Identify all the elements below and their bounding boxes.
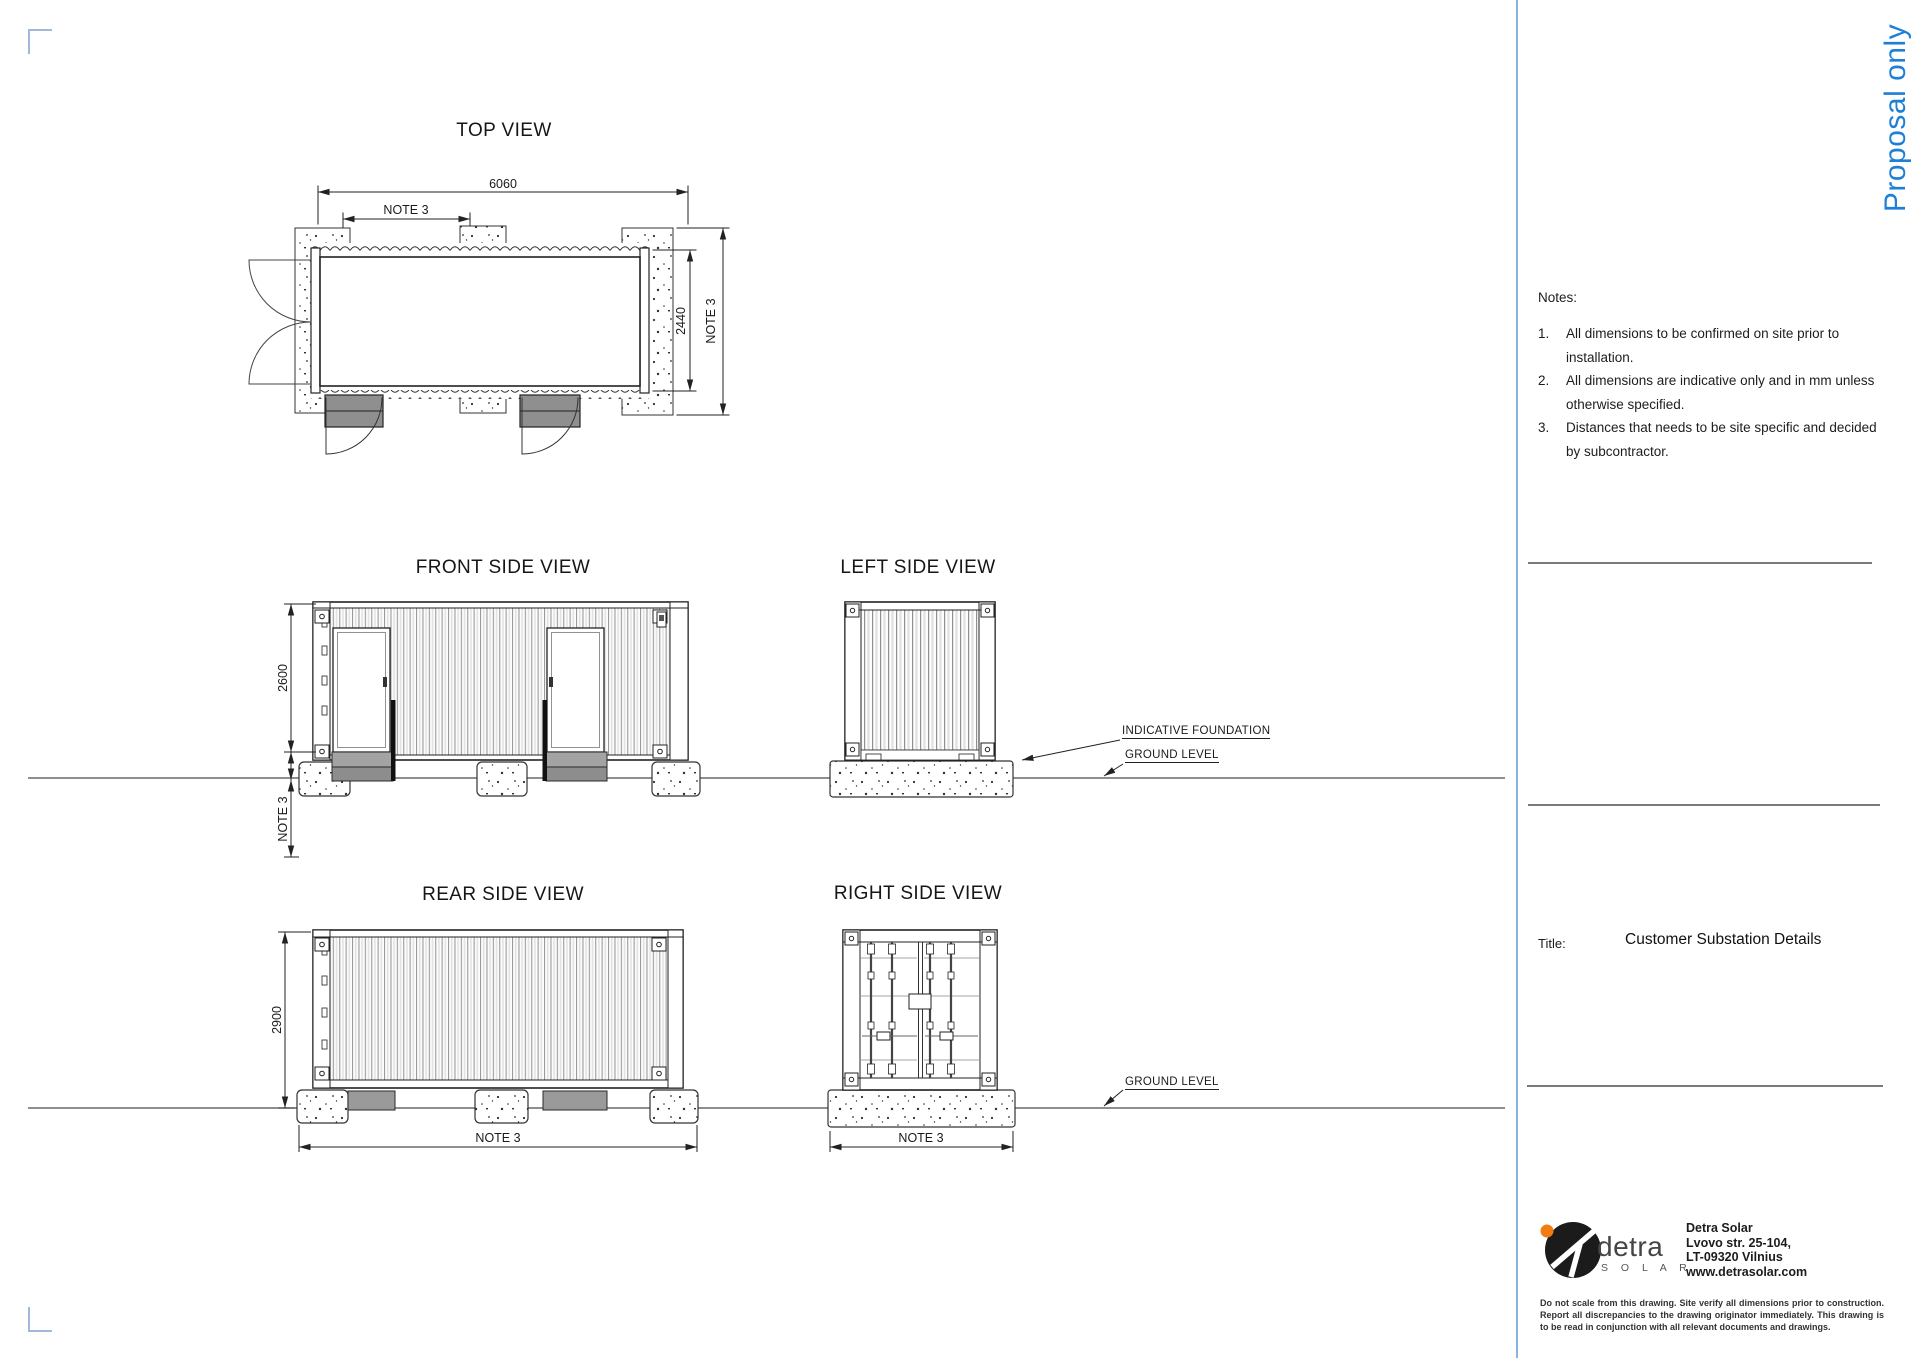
container-door-end xyxy=(843,930,997,1090)
foundation-pad xyxy=(652,762,700,796)
left-side-view xyxy=(830,602,1123,797)
ground-level-label-bottom: GROUND LEVEL xyxy=(1125,1076,1219,1090)
company-address-line2: LT-09320 Vilnius xyxy=(1686,1250,1807,1265)
center-latch xyxy=(909,994,931,1009)
drawing-sheet: TOP VIEW FRONT SIDE VIEW LEFT SIDE VIEW … xyxy=(0,0,1920,1358)
indicative-foundation-label: INDICATIVE FOUNDATION xyxy=(1122,725,1270,739)
view-title-top: TOP VIEW xyxy=(456,120,551,142)
foundation-pad xyxy=(650,1090,698,1123)
leader-indicative-foundation xyxy=(1022,740,1120,760)
dim-front-height: 2600 xyxy=(276,664,290,692)
right-side-view xyxy=(828,930,1123,1152)
foundation-pad xyxy=(297,1090,348,1123)
door-handle xyxy=(877,1032,890,1040)
panel-separator-1 xyxy=(1528,562,1872,564)
ground-level-label-mid: GROUND LEVEL xyxy=(1125,749,1219,763)
corner-mark-bottom-left xyxy=(28,1307,52,1332)
logo-wordmark: detra xyxy=(1597,1231,1663,1263)
door-handle xyxy=(940,1032,953,1040)
drawing-disclaimer: Do not scale from this drawing. Site ver… xyxy=(1540,1297,1884,1333)
dim-rear-height: 2900 xyxy=(270,1006,284,1034)
view-title-front: FRONT SIDE VIEW xyxy=(416,557,591,579)
dim-top-note: NOTE 3 xyxy=(383,203,428,217)
container-plan-outline xyxy=(320,257,640,386)
note-item: 3. Distances that needs to be site speci… xyxy=(1538,416,1883,463)
panel-separator-3 xyxy=(1527,1085,1883,1087)
notes-list: 1. All dimensions to be confirmed on sit… xyxy=(1538,322,1883,463)
view-title-left: LEFT SIDE VIEW xyxy=(840,557,995,579)
dim-front-note: NOTE 3 xyxy=(276,796,290,841)
dim-top-width: 6060 xyxy=(489,177,517,191)
foundation-block xyxy=(830,761,1013,797)
panel-separator-2 xyxy=(1528,804,1880,806)
note-item: 2. All dimensions are indicative only an… xyxy=(1538,369,1883,416)
leader-ground-level xyxy=(1104,764,1123,776)
title-block-label: Title: xyxy=(1538,936,1566,951)
view-title-rear: REAR SIDE VIEW xyxy=(422,884,584,906)
dim-right-note: NOTE 3 xyxy=(898,1131,943,1145)
company-address: Detra Solar Lvovo str. 25-104, LT-09320 … xyxy=(1686,1221,1807,1279)
note-text: Distances that needs to be site specific… xyxy=(1566,416,1878,463)
notes-heading: Notes: xyxy=(1538,290,1577,305)
proposal-watermark: Proposal only xyxy=(1879,24,1913,212)
company-website: www.detrasolar.com xyxy=(1686,1265,1807,1280)
company-address-line1: Lvovo str. 25-104, xyxy=(1686,1236,1807,1251)
note-text: All dimensions are indicative only and i… xyxy=(1566,369,1878,416)
note-item: 1. All dimensions to be confirmed on sit… xyxy=(1538,322,1883,369)
note-number: 3. xyxy=(1538,416,1566,463)
front-side-view xyxy=(284,602,700,857)
corner-mark-top-left xyxy=(28,29,52,54)
door-front-1 xyxy=(333,628,390,752)
note-text: All dimensions to be confirmed on site p… xyxy=(1566,322,1878,369)
dim-top-depth: 2440 xyxy=(674,307,688,335)
container-roof-corrugation-top xyxy=(311,243,649,252)
leader-ground-level xyxy=(1104,1090,1123,1106)
rear-side-view xyxy=(278,930,698,1152)
top-view-plan xyxy=(249,186,729,454)
title-block-value: Customer Substation Details xyxy=(1625,931,1821,949)
dim-top-note-right: NOTE 3 xyxy=(704,298,718,343)
foundation-pad xyxy=(477,762,527,796)
view-title-right: RIGHT SIDE VIEW xyxy=(834,883,1002,905)
logo-subtext: S O L A R xyxy=(1601,1262,1692,1274)
foundation-pad xyxy=(475,1090,528,1123)
note-number: 2. xyxy=(1538,369,1566,416)
foundation-block xyxy=(828,1090,1015,1127)
logo-sun-dot xyxy=(1541,1225,1554,1238)
dim-rear-note: NOTE 3 xyxy=(475,1131,520,1145)
note-number: 1. xyxy=(1538,322,1566,369)
door-front-2 xyxy=(547,628,604,752)
panel-divider-line xyxy=(1516,0,1518,1358)
company-name: Detra Solar xyxy=(1686,1221,1807,1236)
